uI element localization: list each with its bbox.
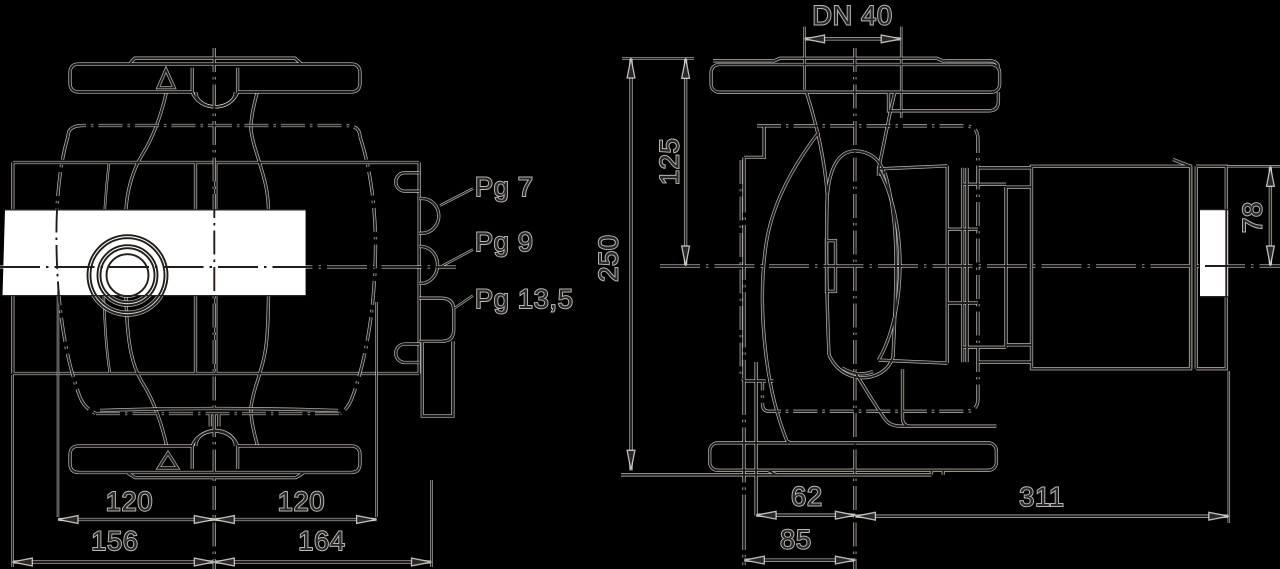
svg-text:311: 311: [1019, 482, 1064, 512]
svg-text:120: 120: [106, 487, 153, 517]
svg-text:Pg 13,5: Pg 13,5: [475, 284, 574, 314]
svg-text:62: 62: [791, 482, 823, 512]
svg-text:85: 85: [780, 524, 812, 554]
svg-text:125: 125: [655, 138, 685, 185]
svg-text:156: 156: [91, 526, 138, 556]
svg-text:DN 40: DN 40: [812, 1, 893, 31]
svg-text:Pg 9: Pg 9: [475, 227, 534, 257]
svg-text:78: 78: [1238, 201, 1268, 233]
svg-text:164: 164: [298, 526, 345, 556]
svg-text:120: 120: [278, 487, 325, 517]
svg-text:250: 250: [594, 234, 624, 281]
svg-text:Pg 7: Pg 7: [475, 172, 534, 202]
